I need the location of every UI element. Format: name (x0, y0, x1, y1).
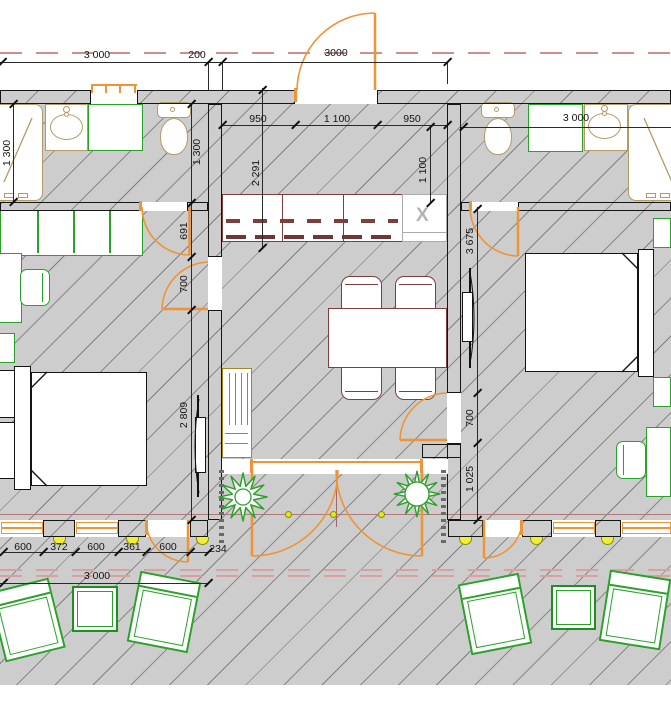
dim-line (0, 62, 447, 63)
nightstand-right-2[interactable] (653, 377, 671, 407)
wall-stub-south (422, 444, 461, 458)
shower-right-foot (646, 193, 656, 198)
dim-label-door[interactable]: 700 (178, 267, 190, 301)
bed-left[interactable] (31, 372, 147, 486)
dim-label-top-center[interactable]: 3000 (316, 47, 356, 59)
terrace-table[interactable] (551, 585, 596, 630)
dim-label-pier[interactable]: 234 (203, 543, 233, 555)
dim-label-kitchen[interactable]: 1 100 (317, 113, 357, 125)
tv-left[interactable] (195, 417, 206, 473)
light-dot (378, 511, 385, 518)
dim-label-bath-left[interactable]: 1 300 (1, 133, 13, 173)
dim-ext-line (447, 63, 448, 84)
dim-label-bath-left[interactable]: 1 300 (191, 132, 203, 172)
shelf-unit[interactable] (222, 368, 252, 458)
dim-label-pier[interactable]: 361 (117, 541, 147, 553)
dining-chair[interactable] (341, 366, 382, 400)
dining-chair[interactable] (395, 276, 436, 310)
dim-line (222, 125, 447, 126)
window-symbol-tick (91, 84, 93, 93)
dim-label-bedroom-right[interactable]: 3 675 (464, 221, 476, 261)
bed-right[interactable] (525, 253, 638, 372)
faucet-right (602, 111, 607, 116)
toilet-left-bowl (160, 118, 188, 155)
window-frame[interactable] (1, 522, 43, 534)
screen-strip-right (441, 470, 446, 546)
dim-label-bath-right[interactable]: 3 000 (553, 112, 599, 124)
shower-right-foot (660, 193, 670, 198)
wall-pier (595, 520, 621, 537)
french-door-threshold (252, 461, 422, 463)
dim-label-bedroom-left[interactable]: 2 809 (178, 393, 190, 437)
dim-line (477, 207, 478, 521)
entrance-opening (295, 90, 377, 104)
door-opening-suite-right (447, 393, 461, 443)
dim-label-door[interactable]: 700 (464, 401, 476, 435)
wall-pier (43, 520, 75, 537)
window-symbol-tick (119, 84, 121, 93)
desk-chair-right[interactable] (616, 441, 646, 479)
cooktop-module-line (403, 232, 446, 233)
toilet-left-button (170, 107, 175, 112)
dim-line (13, 103, 14, 203)
door-opening-bath-left (140, 202, 187, 211)
desk-left[interactable] (0, 253, 22, 323)
wall-interior-right (447, 104, 461, 393)
faucet-left (64, 112, 69, 117)
door-opening-terrace-left (146, 520, 190, 537)
door-jamb (139, 201, 142, 211)
dim-ext-line (208, 63, 209, 90)
door-opening-terrace-right (483, 520, 522, 537)
wall-bath-right (518, 202, 671, 211)
light-dot (285, 511, 292, 518)
dim-label-window[interactable]: 600 (8, 541, 38, 553)
door-jamb (145, 520, 148, 535)
door-jamb (520, 520, 523, 535)
wall-top (137, 90, 295, 104)
dim-label-kitchen[interactable]: 950 (392, 113, 432, 125)
terrace-lounger[interactable] (599, 570, 671, 651)
toilet-right-button (494, 107, 499, 112)
wall-top (377, 90, 671, 104)
dim-label-kitchen[interactable]: 950 (238, 113, 278, 125)
dim-line (0, 583, 208, 584)
desk-chair-left[interactable] (20, 269, 50, 306)
dim-label-door[interactable]: 600 (153, 541, 183, 553)
cooktop-marker: X (416, 205, 429, 227)
washer-left[interactable] (88, 104, 143, 151)
bed-right-headboard (638, 249, 654, 377)
light-dot (330, 511, 337, 518)
dim-label-window[interactable]: 600 (81, 541, 111, 553)
shower-left-foot (18, 193, 28, 198)
wardrobe-left[interactable] (0, 210, 143, 256)
screen-strip-left (219, 470, 224, 546)
floor-plan-canvas: X (0, 0, 671, 714)
terrace-lounger[interactable] (458, 573, 533, 656)
bed-left-headboard (14, 366, 31, 490)
dim-label-hall-depth[interactable]: 2 291 (250, 153, 262, 193)
dining-table[interactable] (328, 308, 447, 368)
door-jamb (250, 459, 253, 473)
door-jamb (294, 88, 297, 102)
window-frame[interactable] (553, 522, 595, 534)
door-jamb (420, 459, 423, 473)
dim-label-top-left[interactable]: 3 000 (72, 49, 122, 61)
dining-chair[interactable] (341, 276, 382, 310)
door-jamb (469, 201, 472, 211)
sink-left[interactable] (50, 114, 83, 140)
window-symbol-tick (105, 84, 107, 93)
door-centre-line (336, 470, 337, 527)
terrace-table[interactable] (72, 586, 118, 632)
desk-right[interactable] (646, 427, 671, 497)
window-frame[interactable] (76, 522, 118, 534)
nightstand-right-1[interactable] (653, 218, 671, 248)
window-opening-top-left (91, 90, 137, 104)
window-symbol-tick (134, 84, 136, 93)
dim-line (430, 127, 431, 204)
dim-line (461, 127, 671, 128)
dim-label-wall[interactable]: 1 025 (464, 459, 476, 499)
dim-label-kitchen-depth[interactable]: 1 100 (417, 150, 429, 190)
shower-right[interactable] (628, 104, 671, 201)
wall-pier (448, 520, 483, 537)
dim-label-pier[interactable]: 372 (44, 541, 74, 553)
door-opening-suite-left (208, 257, 222, 310)
wall-pier (118, 520, 146, 537)
dim-label-door[interactable]: 691 (178, 214, 190, 248)
kitchen-counter-dashed-line (226, 235, 398, 239)
window-frame[interactable] (622, 522, 671, 534)
wall-pier (522, 520, 552, 537)
dim-label-top-wall[interactable]: 200 (183, 49, 211, 61)
wall-pier (190, 520, 208, 537)
dim-ext-line (222, 63, 223, 90)
wall-bath-left (0, 202, 140, 211)
cabinet-left[interactable] (0, 333, 15, 363)
window-symbol-top-left[interactable] (91, 84, 137, 90)
dining-chair[interactable] (395, 366, 436, 400)
tv-right[interactable] (462, 292, 473, 342)
dim-label-terrace[interactable]: 3 000 (72, 570, 122, 582)
toilet-right-bowl (484, 118, 512, 155)
kitchen-counter-dashed-line (226, 219, 398, 223)
